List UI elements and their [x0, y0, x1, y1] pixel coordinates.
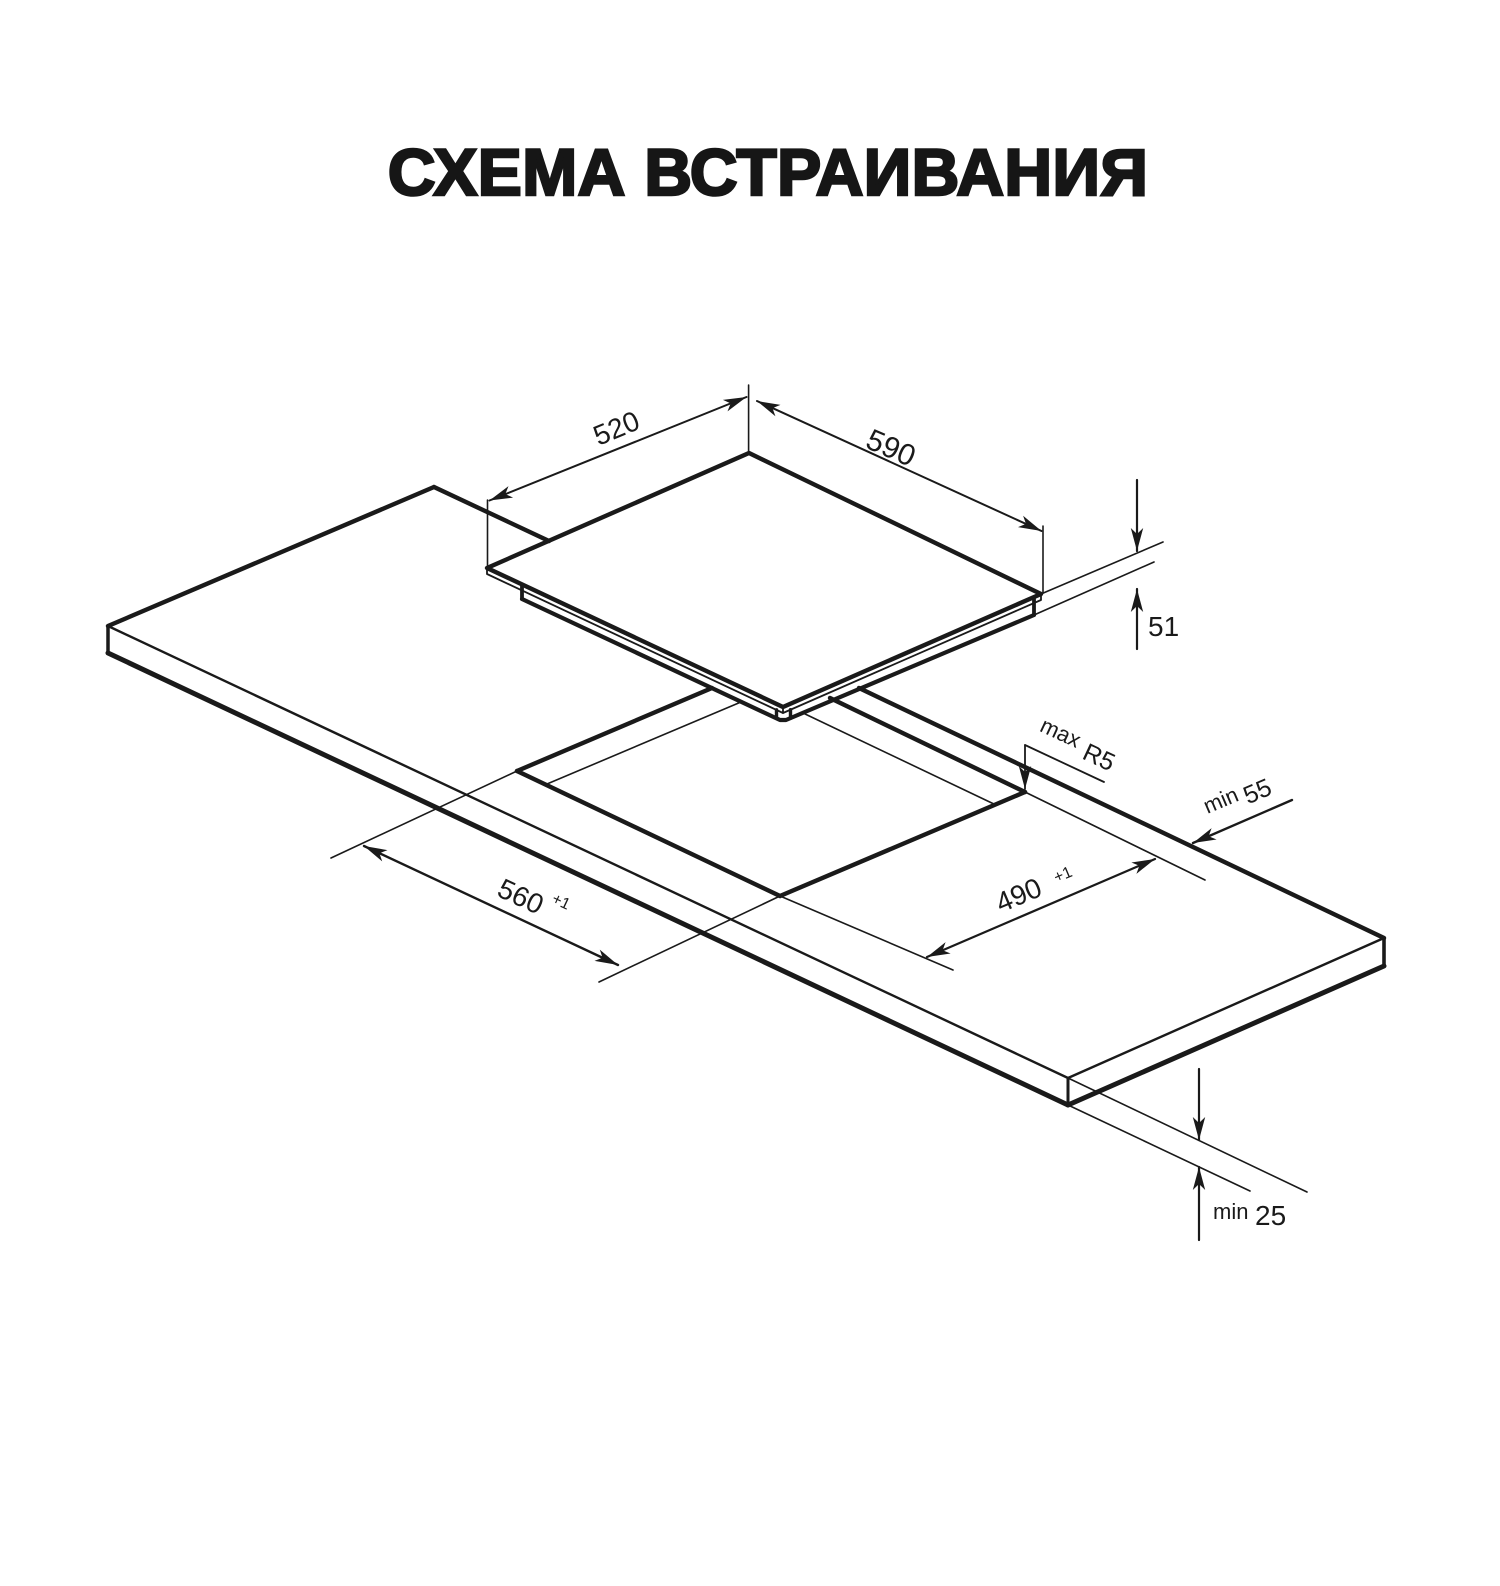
svg-text:СХЕМА ВСТРАИВАНИЯ: СХЕМА ВСТРАИВАНИЯ [388, 135, 1148, 209]
svg-text:min: min [1213, 1199, 1248, 1224]
svg-text:51: 51 [1148, 611, 1179, 642]
svg-text:25: 25 [1255, 1200, 1286, 1231]
